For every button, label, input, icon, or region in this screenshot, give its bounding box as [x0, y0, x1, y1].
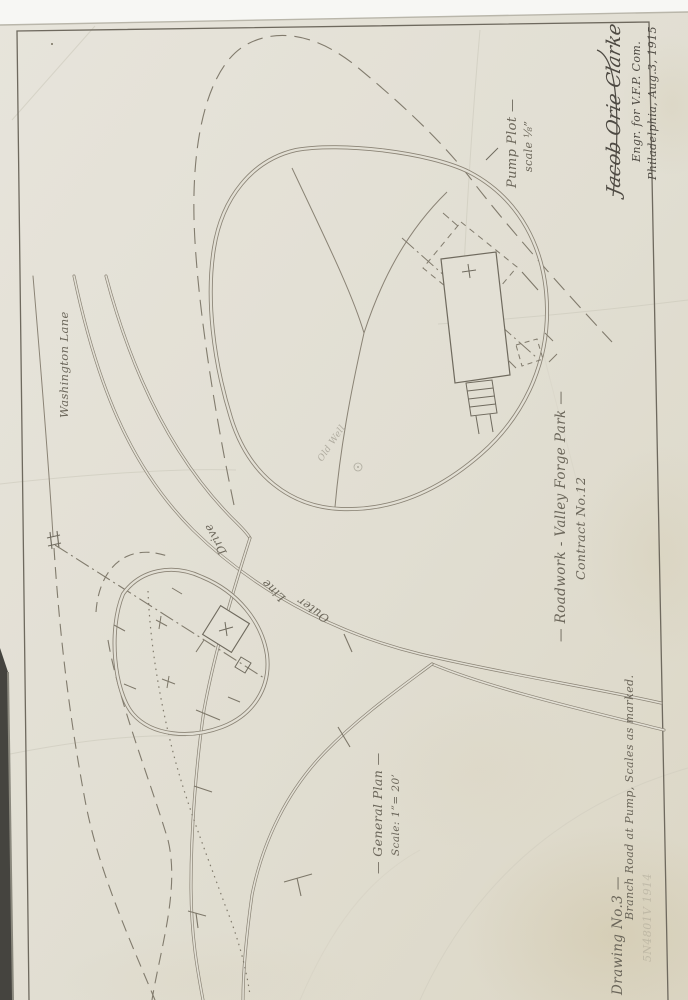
drawing-canvas: Old Well Washington Lane Outer Line Driv… [0, 0, 688, 1000]
project-title: — Roadwork - Valley Forge Park — [553, 391, 569, 642]
signature-place-date: Philadelphia, Aug.3, 1915 [646, 26, 659, 181]
scanned-drawing-sheet: Old Well Washington Lane Outer Line Driv… [0, 0, 688, 1000]
contract-number: Contract No.12 [573, 477, 588, 580]
drawing-subtitle: Branch Road at Pump, Scales as marked. [623, 675, 636, 921]
pump-plot-scale: scale ⅛” [522, 121, 535, 172]
washington-lane-label: Washington Lane [57, 311, 71, 418]
general-plan-title: — General Plan — [370, 752, 385, 874]
faint-pencil-mark: 5N4801V 1914 [641, 873, 654, 962]
pump-plot-title: Pump Plot — [505, 99, 520, 189]
engineer-signature: Jacob Orie Clarke [602, 21, 625, 201]
engineer-title: Engr. for V.F.P. Com. [630, 41, 643, 163]
general-plan-scale: Scale: 1”= 20’ [390, 774, 402, 856]
ink-speck [51, 43, 53, 45]
